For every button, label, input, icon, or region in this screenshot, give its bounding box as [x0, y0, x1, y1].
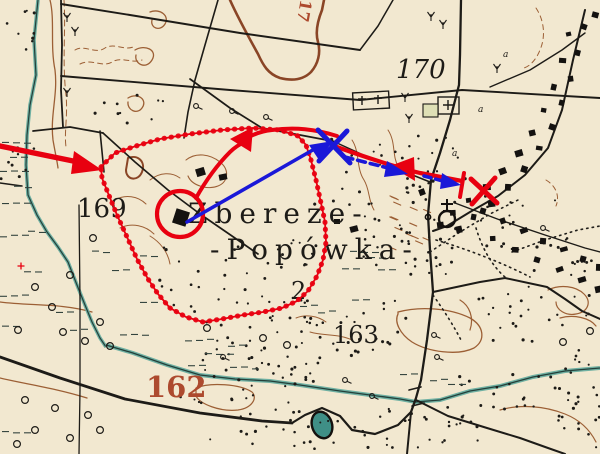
- building: [568, 76, 574, 82]
- historical-topographic-map: 170 169 163. 162 17 Zbereże- -Popówka- 2…: [0, 0, 600, 454]
- label-village-line2: -Popówka-: [210, 233, 419, 266]
- building: [505, 184, 511, 191]
- label-17-clipped: 17: [293, 0, 316, 24]
- tiny-a-symbol: a: [478, 105, 483, 115]
- building: [512, 247, 519, 253]
- tiny-a-symbol: a: [503, 50, 508, 60]
- label-170: 170: [396, 55, 446, 85]
- label-162: 162: [146, 370, 207, 404]
- label-village-line1: Zbereże-: [188, 197, 369, 230]
- building: [490, 236, 496, 241]
- label-163: 163.: [333, 321, 386, 349]
- building: [596, 264, 600, 271]
- building: [559, 58, 566, 63]
- building: [541, 108, 547, 113]
- tiny-a-symbol: a: [452, 149, 457, 159]
- building: [540, 238, 546, 245]
